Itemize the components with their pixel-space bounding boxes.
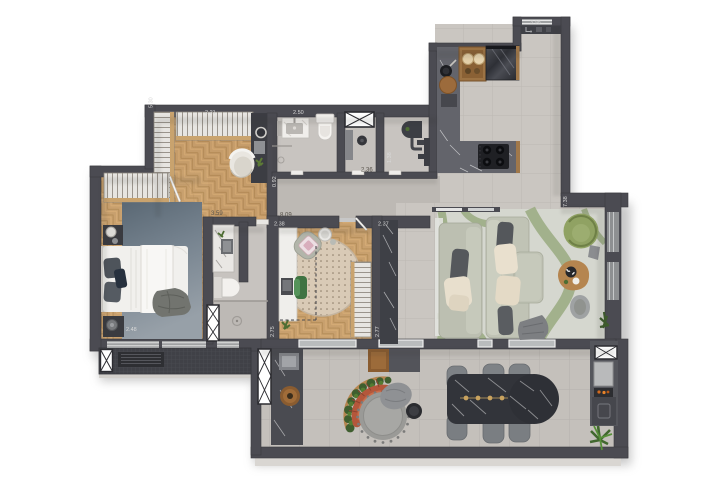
svg-text:2.36: 2.36 xyxy=(361,168,373,174)
svg-text:8.09: 8.09 xyxy=(280,213,292,219)
svg-text:2.38: 2.38 xyxy=(274,222,285,228)
svg-text:0.92: 0.92 xyxy=(272,176,278,187)
svg-text:2.77: 2.77 xyxy=(375,326,381,337)
svg-text:2.21: 2.21 xyxy=(205,110,216,116)
svg-text:2.48: 2.48 xyxy=(126,327,137,333)
svg-text:7.38: 7.38 xyxy=(563,196,569,207)
svg-text:3.98: 3.98 xyxy=(530,20,541,26)
svg-text:2.75: 2.75 xyxy=(270,326,276,337)
svg-text:5.30: 5.30 xyxy=(149,97,155,108)
svg-text:3.59: 3.59 xyxy=(211,211,223,217)
svg-text:2.50: 2.50 xyxy=(293,110,304,116)
svg-text:1.38: 1.38 xyxy=(387,152,393,163)
svg-text:2.37: 2.37 xyxy=(378,222,389,228)
